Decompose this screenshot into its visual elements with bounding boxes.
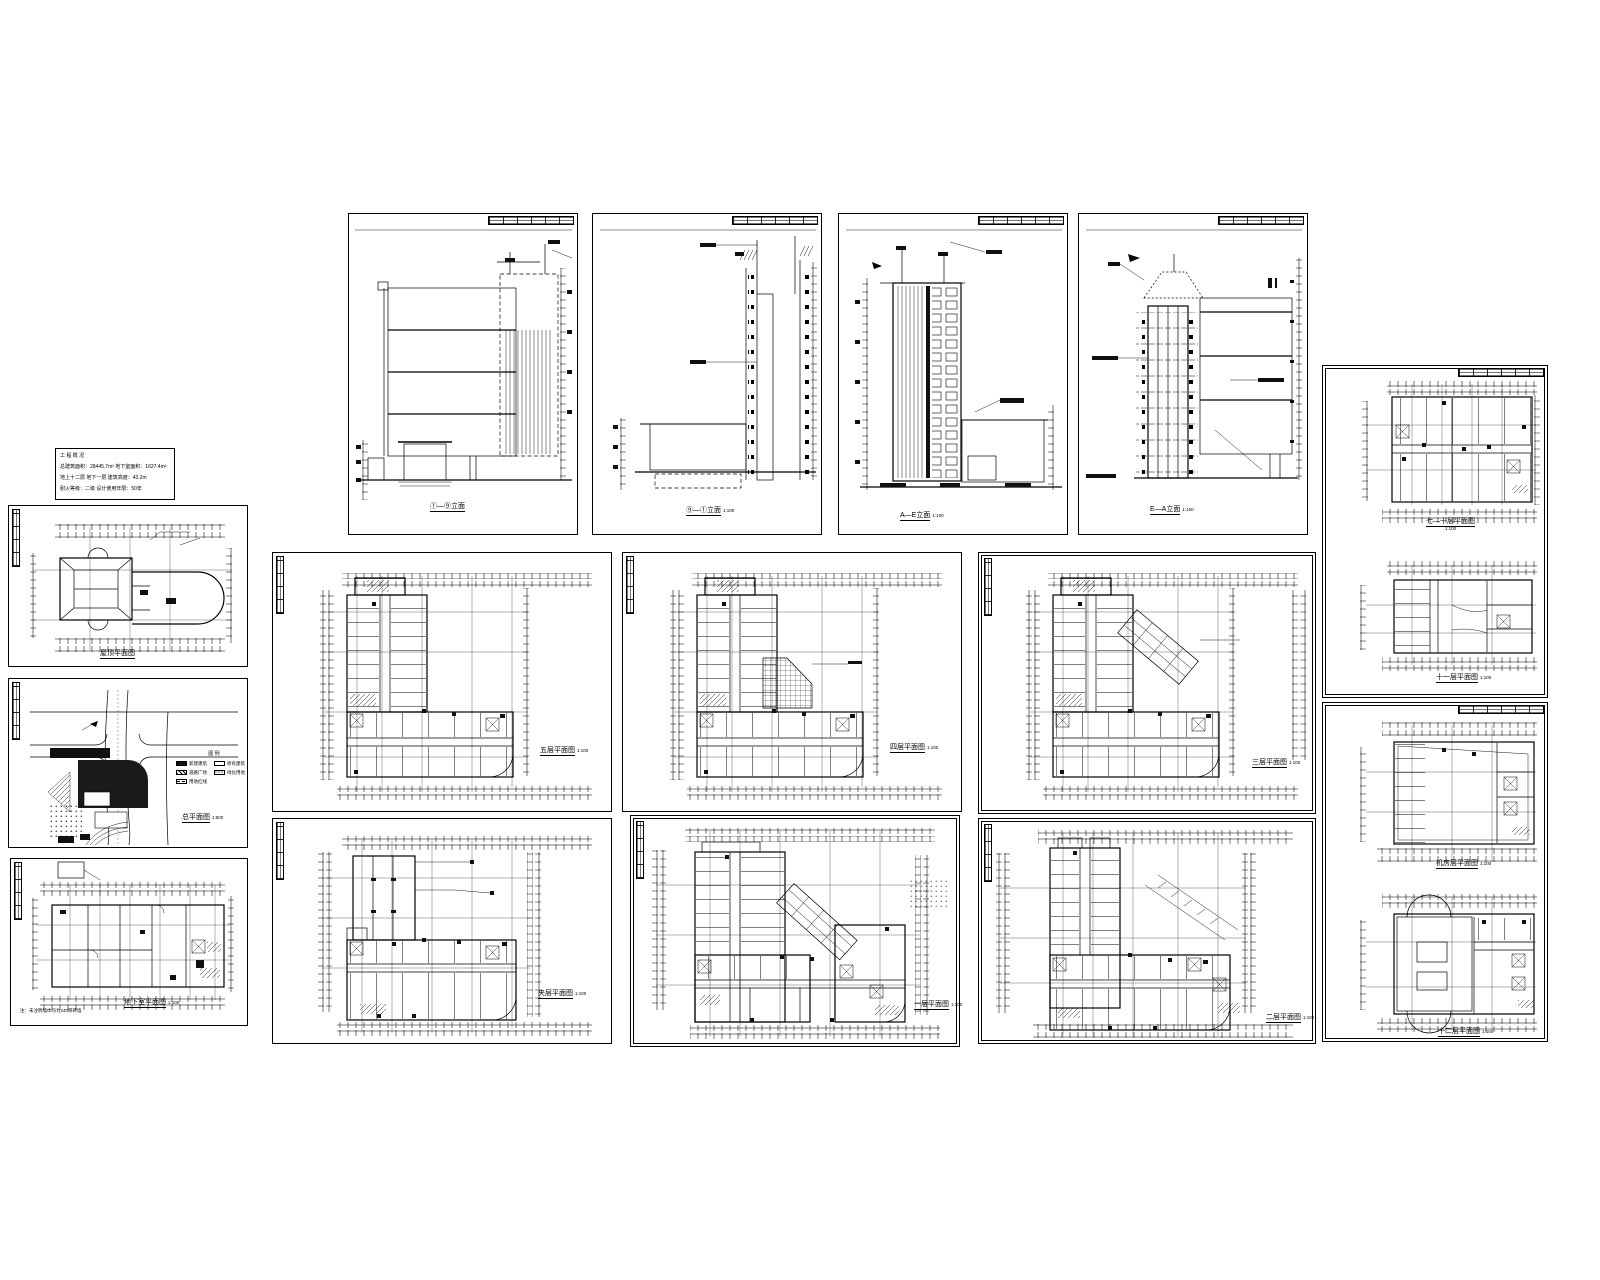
- title-block-strip: [12, 509, 20, 567]
- sheet-plan-1f: [630, 815, 960, 1047]
- legend-item: 绿化用地: [214, 768, 252, 777]
- caption-elevation-1: ①—⑨立面: [430, 503, 465, 511]
- caption-plan-1f: 一层平面图1:100: [914, 1001, 962, 1009]
- legend-item: 道路广场: [176, 768, 214, 777]
- title-block-strip: [1218, 216, 1304, 225]
- note-line: 工 程 概 况: [60, 451, 170, 462]
- note-line: 总建筑面积：28445.7m² 地下室面积：1627.4m²: [60, 462, 170, 473]
- sheet-plan-4f: [622, 552, 962, 812]
- caption-plan-5f: 五层平面图1:100: [540, 747, 588, 755]
- caption-plan-4f: 四层平面图1:100: [890, 744, 938, 752]
- legend-swatch-dots: [214, 770, 225, 775]
- caption-plans-top-b: 十二层平面图1:100: [1438, 1028, 1493, 1036]
- title-block-strip: [626, 556, 634, 614]
- sheet-elevation-4: [1078, 213, 1308, 535]
- basement-note: 注：未注明墙体均为240厚砖墙: [20, 1008, 82, 1013]
- title-block-strip: [276, 556, 284, 614]
- sheet-plan-3f: [978, 552, 1316, 814]
- caption-plans-top-a: 机房层平面图1:100: [1436, 860, 1491, 868]
- sheet-elevation-3: [838, 213, 1068, 535]
- legend-title: 图 例: [176, 750, 252, 757]
- title-block-strip: [732, 216, 818, 225]
- sheet-plan-mezzanine: [272, 818, 612, 1044]
- sheet-elevation-2: [592, 213, 822, 535]
- caption-plan-2f: 二层平面图1:100: [1266, 1014, 1314, 1022]
- caption-plans-upper-a: 七—十层平面图1:100: [1426, 518, 1475, 532]
- title-block-strip: [14, 862, 22, 920]
- caption-basement-plan: 地下室平面图1:100: [124, 999, 179, 1007]
- legend-swatch-solid: [176, 761, 187, 766]
- title-block-strip: [1458, 368, 1544, 377]
- sheet-roof-plan: [8, 505, 248, 667]
- legend-swatch-outline: [214, 761, 225, 766]
- title-block-strip: [978, 216, 1064, 225]
- legend-item: 原有建筑: [214, 759, 252, 768]
- title-block-strip: [636, 821, 644, 879]
- project-note-box: 工 程 概 况 总建筑面积：28445.7m² 地下室面积：1627.4m² 地…: [55, 448, 175, 500]
- drawing-canvas: 工 程 概 况 总建筑面积：28445.7m² 地下室面积：1627.4m² 地…: [0, 0, 1600, 1280]
- caption-site-plan: 总平面图1:500: [182, 814, 223, 822]
- title-block-strip: [984, 824, 992, 882]
- note-line: 耐火等级：二级 设计使用年限：50年: [60, 484, 170, 495]
- sheet-plans-top: [1322, 702, 1548, 1042]
- caption-roof-plan: 屋顶平面图: [100, 650, 135, 658]
- caption-elevation-4: E—A立面1:100: [1150, 506, 1194, 514]
- sheet-plan-5f: [272, 552, 612, 812]
- note-line: 地上十二层 地下一层 建筑高度：43.2m: [60, 473, 170, 484]
- caption-elevation-2: ⑨—①立面1:100: [686, 507, 734, 515]
- caption-plan-3f: 三层平面图1:100: [1252, 759, 1300, 767]
- sheet-plan-2f: [978, 818, 1316, 1044]
- caption-elevation-3: A—E立面1:100: [900, 512, 944, 520]
- caption-plan-mezzanine: 夹层平面图1:100: [538, 990, 586, 998]
- site-legend: 图 例 新建建筑 原有建筑 道路广场 绿化用地 用地红线: [176, 750, 252, 786]
- title-block-strip: [984, 558, 992, 616]
- caption-plans-upper-b: 十一层平面图1:100: [1436, 674, 1491, 682]
- title-block-strip: [12, 682, 20, 740]
- sheet-elevation-1: [348, 213, 578, 535]
- legend-item: 用地红线: [176, 777, 214, 786]
- legend-item: 新建建筑: [176, 759, 214, 768]
- title-block-strip: [276, 822, 284, 880]
- legend-swatch-hatch: [176, 770, 187, 775]
- title-block-strip: [1458, 705, 1544, 714]
- title-block-strip: [488, 216, 574, 225]
- legend-swatch-dash: [176, 779, 187, 784]
